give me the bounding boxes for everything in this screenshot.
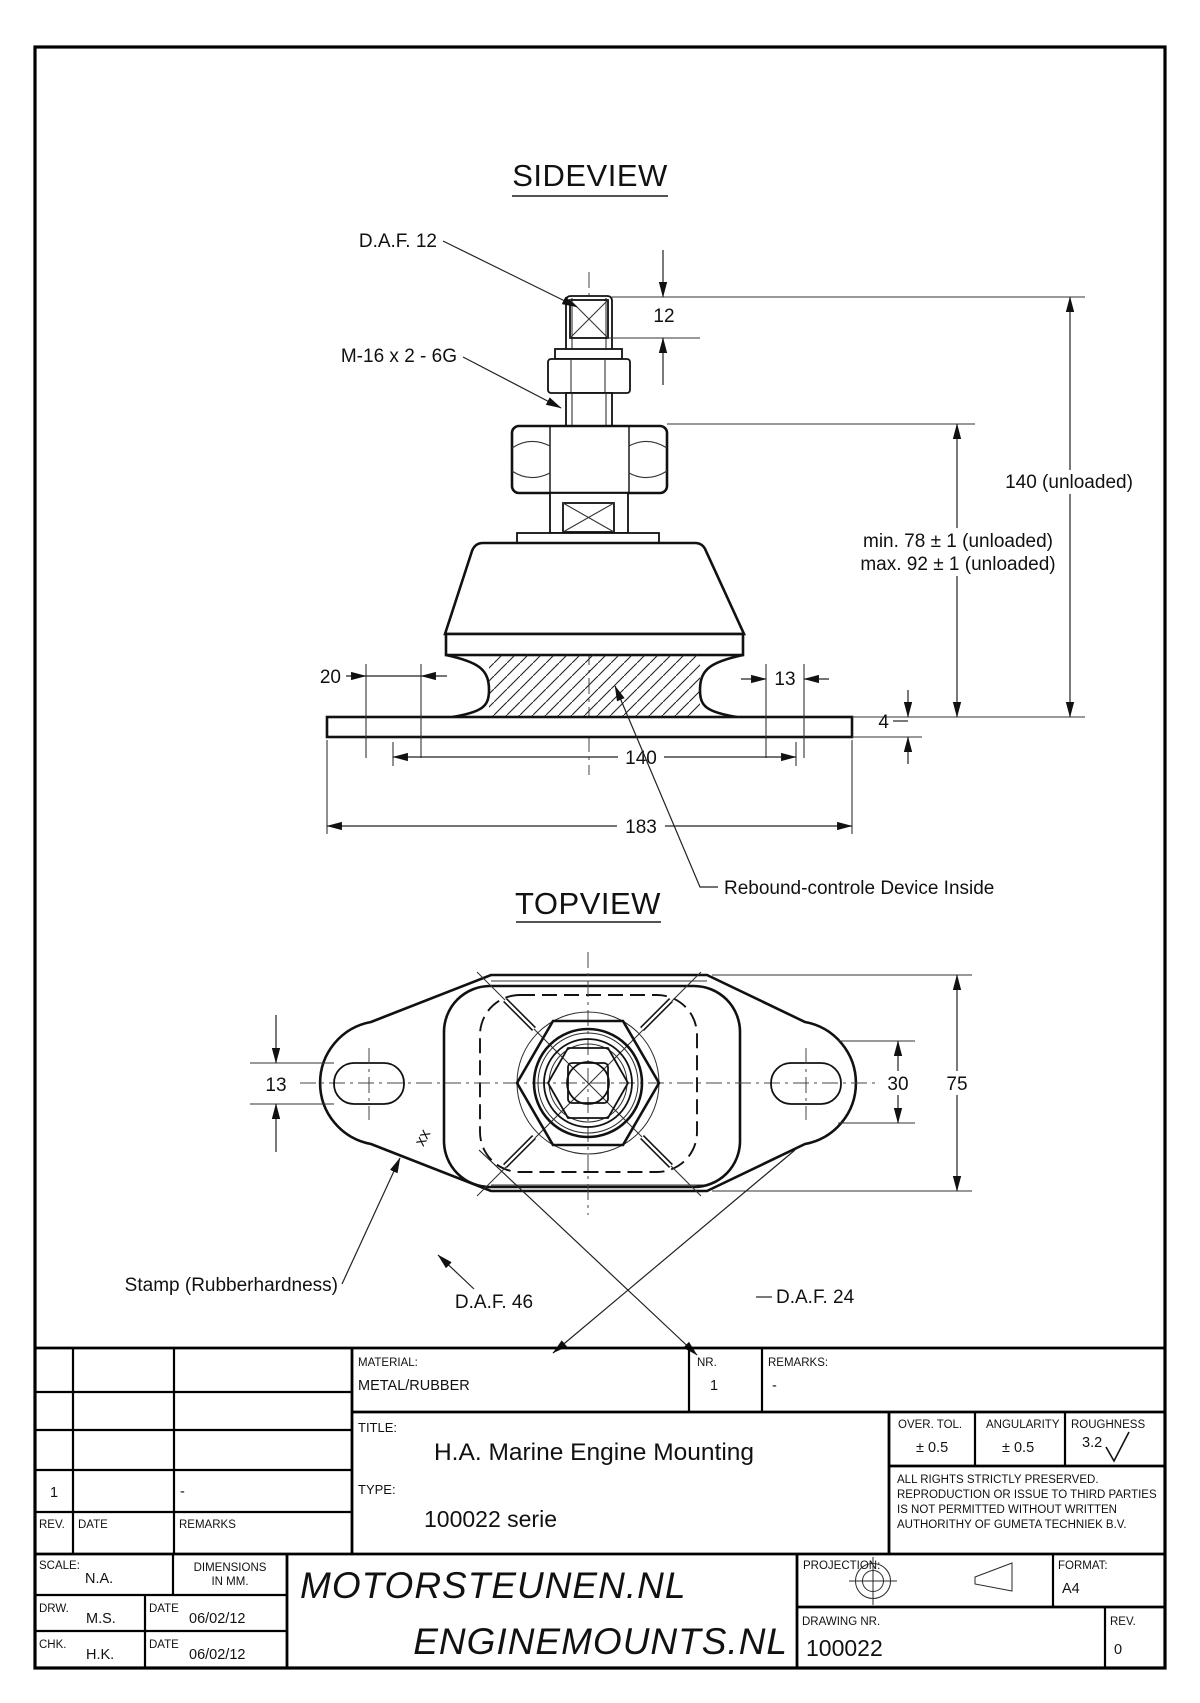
angularity-value: ± 0.5 xyxy=(1002,1440,1034,1456)
sideview-title: SIDEVIEW xyxy=(512,158,668,193)
drawing-nr-cell: DRAWING NR. 100022 REV. 0 xyxy=(802,1616,1136,1661)
daf24-text: D.A.F. 24 xyxy=(776,1287,855,1308)
label-daf24: D.A.F. 24 xyxy=(756,1287,855,1308)
dim-183-text: 183 xyxy=(625,817,657,838)
label-daf12: D.A.F. 12 xyxy=(359,231,577,307)
dim-20-text: 20 xyxy=(320,667,341,688)
tolerance-cells: OVER. TOL. ± 0.5 ANGULARITY ± 0.5 ROUGHN… xyxy=(898,1419,1145,1461)
dim-13-side-text: 13 xyxy=(774,669,795,690)
first-angle-projection-icon xyxy=(849,1557,1012,1605)
chk-value: H.K. xyxy=(86,1647,114,1663)
title-block: 1 - REV. DATE REMARKS MATERIAL: METAL/RU… xyxy=(35,1348,1165,1668)
type-label: TYPE: xyxy=(358,1482,396,1497)
nr-value: 1 xyxy=(710,1378,718,1394)
rights-line-4: AUTHORITHY OF GUMETA TECHNIEK B.V. xyxy=(897,1519,1127,1531)
over-tol-value: ± 0.5 xyxy=(916,1440,948,1456)
threaded-section xyxy=(566,393,612,426)
remarks-value: - xyxy=(772,1378,777,1394)
brand-line1: MOTORSTEUNEN.NL xyxy=(300,1565,686,1606)
dim-140-text: 140 xyxy=(625,748,657,769)
chk-date-value: 06/02/12 xyxy=(189,1647,245,1663)
rights-line-3: IS NOT PERMITTED WITHOUT WRITTEN xyxy=(897,1504,1117,1516)
rights-line-1: ALL RIGHTS STRICTLY PRESERVED. xyxy=(897,1474,1099,1486)
chk-row: CHK. H.K. DATE 06/02/12 xyxy=(39,1639,245,1663)
rights-text: ALL RIGHTS STRICTLY PRESERVED. REPRODUCT… xyxy=(897,1474,1157,1531)
drw-label: DRW. xyxy=(39,1603,69,1615)
daf46-text: D.A.F. 46 xyxy=(455,1292,533,1313)
scale-value: N.A. xyxy=(85,1571,113,1587)
thread-text: M-16 x 2 - 6G xyxy=(341,346,457,367)
topview-drawing: TOPVIEW xyxy=(125,886,973,1355)
label-daf46: D.A.F. 46 xyxy=(438,1255,533,1313)
dim-12-text: 12 xyxy=(653,306,674,327)
stamp-text: Stamp (Rubberhardness) xyxy=(125,1275,338,1296)
nr-label: NR. xyxy=(697,1357,717,1369)
roughness-value: 3.2 xyxy=(1082,1435,1102,1451)
rights-line-2: REPRODUCTION OR ISSUE TO THIRD PARTIES xyxy=(897,1489,1157,1501)
title-type-cell: TITLE: H.A. Marine Engine Mounting TYPE:… xyxy=(358,1420,754,1532)
upper-locknut xyxy=(548,359,630,393)
title-label: TITLE: xyxy=(358,1420,397,1435)
dim-4-text: 4 xyxy=(878,712,889,733)
drw-date-value: 06/02/12 xyxy=(189,1611,245,1627)
rev-label: REV. xyxy=(1110,1616,1136,1628)
dim-20: 20 xyxy=(320,664,447,758)
dim-max-text: max. 92 ± 1 (unloaded) xyxy=(860,554,1055,575)
topview-title: TOPVIEW xyxy=(515,886,661,921)
dimensions-label-line1: DIMENSIONS xyxy=(194,1562,267,1574)
rebound-text: Rebound-controle Device Inside xyxy=(724,878,994,899)
material-value: METAL/RUBBER xyxy=(358,1378,470,1394)
base-plate xyxy=(327,717,852,737)
sideview-drawing: SIDEVIEW xyxy=(320,158,1133,899)
washer xyxy=(555,349,622,359)
dim-4: 4 xyxy=(878,690,908,764)
rev-value: 0 xyxy=(1114,1642,1122,1658)
rev-row-number: 1 xyxy=(50,1485,58,1501)
drw-row: DRW. M.S. DATE 06/02/12 xyxy=(39,1603,245,1627)
remarks-header: REMARKS xyxy=(179,1519,236,1531)
brand-line2: ENGINEMOUNTS.NL xyxy=(413,1621,788,1662)
drw-value: M.S. xyxy=(86,1611,116,1627)
projection-cell: PROJECTION: FORMAT: A4 xyxy=(803,1557,1108,1605)
engineering-drawing: SIDEVIEW xyxy=(0,0,1200,1698)
dim-12: 12 xyxy=(650,250,678,385)
date-header: DATE xyxy=(78,1519,108,1531)
revision-table: 1 - REV. DATE REMARKS xyxy=(39,1484,236,1531)
drawing-nr-label: DRAWING NR. xyxy=(802,1616,880,1628)
drawing-sheet: SIDEVIEW xyxy=(0,0,1200,1698)
dim-183: 183 xyxy=(327,740,852,838)
roughness-check-icon xyxy=(1106,1432,1129,1461)
scale-label: SCALE: xyxy=(39,1560,80,1572)
brand-cell: MOTORSTEUNEN.NL ENGINEMOUNTS.NL xyxy=(300,1565,788,1662)
rev-header: REV. xyxy=(39,1519,65,1531)
dim-140: 140 xyxy=(393,742,796,769)
dimensions-label-line2: IN MM. xyxy=(211,1576,248,1588)
scale-cell: SCALE: N.A. DIMENSIONS IN MM. xyxy=(39,1560,267,1588)
angularity-label: ANGULARITY xyxy=(986,1419,1060,1431)
format-label: FORMAT: xyxy=(1058,1560,1108,1572)
bell-housing xyxy=(445,543,744,634)
format-value: A4 xyxy=(1062,1581,1080,1597)
dim-140-unloaded-text: 140 (unloaded) xyxy=(1005,472,1133,493)
daf12-text: D.A.F. 12 xyxy=(359,231,437,252)
roughness-label: ROUGHNESS xyxy=(1071,1419,1145,1431)
drw-date-label: DATE xyxy=(149,1603,179,1615)
chk-label: CHK. xyxy=(39,1639,66,1651)
title-value: H.A. Marine Engine Mounting xyxy=(434,1439,754,1466)
dim-30-text: 30 xyxy=(887,1074,908,1095)
projection-label: PROJECTION: xyxy=(803,1560,880,1572)
dim-min-text: min. 78 ± 1 (unloaded) xyxy=(863,531,1053,552)
material-row: MATERIAL: METAL/RUBBER NR. 1 REMARKS: - xyxy=(358,1357,828,1394)
dim-13-top-text: 13 xyxy=(265,1075,286,1096)
neck-block xyxy=(550,493,628,533)
rubber-element xyxy=(446,655,743,717)
dim-75-text: 75 xyxy=(946,1074,967,1095)
main-hex-nut xyxy=(512,426,667,493)
flange xyxy=(446,634,743,655)
type-value: 100022 serie xyxy=(424,1506,557,1532)
label-thread: M-16 x 2 - 6G xyxy=(341,346,561,408)
dim-140-unloaded: 140 (unloaded) xyxy=(1005,297,1133,717)
rev-row-remarks: - xyxy=(180,1484,185,1500)
material-label: MATERIAL: xyxy=(358,1357,418,1369)
remarks-label: REMARKS: xyxy=(768,1357,828,1369)
drawing-nr-value: 100022 xyxy=(806,1635,883,1661)
dim-min-max: min. 78 ± 1 (unloaded) max. 92 ± 1 (unlo… xyxy=(860,424,1055,717)
chk-date-label: DATE xyxy=(149,1639,179,1651)
over-tol-label: OVER. TOL. xyxy=(898,1419,962,1431)
bell-top-plate xyxy=(517,533,659,543)
dim-13-side: 13 xyxy=(741,664,829,758)
label-stamp: Stamp (Rubberhardness) xx xyxy=(125,1127,435,1296)
